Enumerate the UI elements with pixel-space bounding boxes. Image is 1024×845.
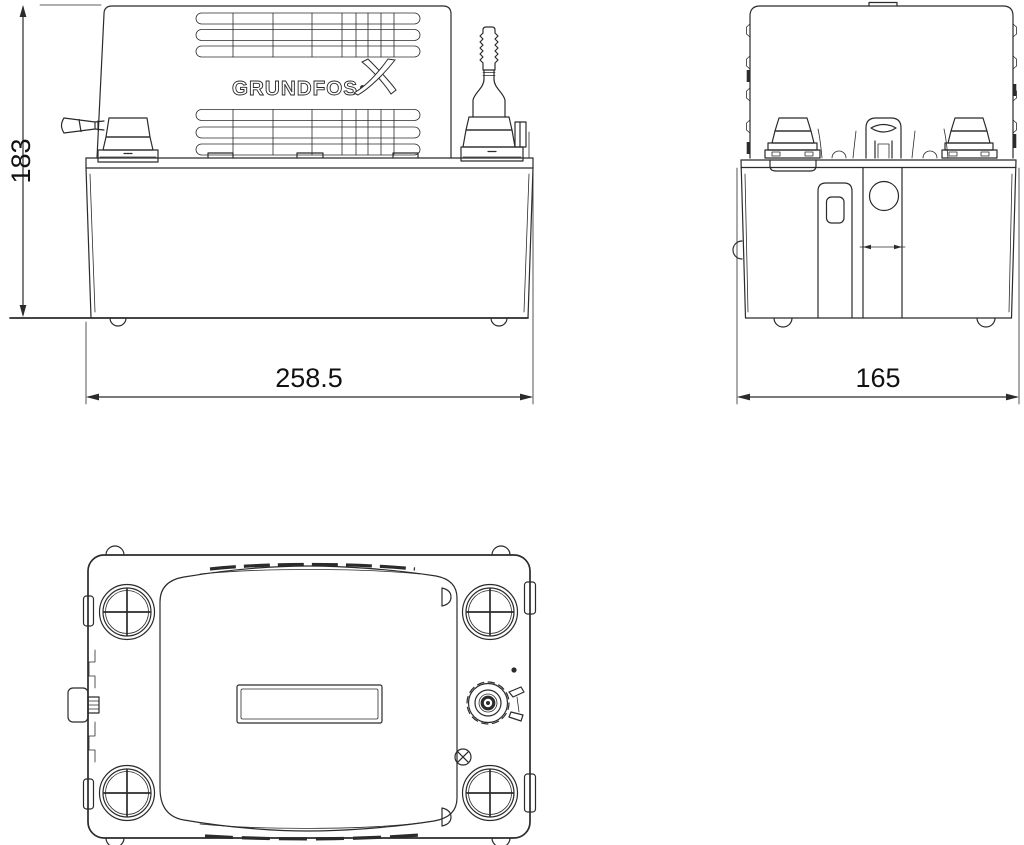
gland-clamp [509,712,523,721]
vent-valve [62,118,105,133]
arrowhead-right [520,394,533,401]
dim-width: 258.5 [86,170,533,404]
grundfos-logo-text: GRUNDFOS [232,78,358,100]
pilot-dot [511,667,516,672]
groove-window [827,197,845,223]
mounting-foot-top-left [100,585,155,640]
arrowhead-right [1006,394,1019,401]
foot-bump [106,546,124,555]
overflow-hole [870,182,899,211]
lid-clip-tab [297,153,323,158]
side-bump [733,241,742,259]
dim-depth: 165 [737,168,1019,404]
foot-bump [106,838,124,845]
side-view: 165 [733,3,1019,405]
mounting-foot-bottom-left [100,766,155,821]
grundfos-logo: GRUNDFOS [232,59,396,100]
tank-foot [491,318,507,326]
bottom-view [68,546,536,845]
arrowhead-down [20,305,27,317]
label-recess [237,685,382,723]
vent-grille-lower [196,110,420,156]
hose-barb [480,27,498,70]
side-grommet-right [942,118,997,158]
under-cap-tab [770,160,816,171]
side-lid [747,3,1017,159]
d-hole [442,588,451,606]
arrowhead-up [20,5,27,17]
tank-foot [110,318,126,326]
technical-drawing-page: GRUNDFOS [0,0,1024,845]
mounting-clip [68,650,99,762]
mounting-foot-top-right [463,585,518,640]
arrowhead-left [737,394,750,401]
grundfos-x-mark-icon [354,59,396,95]
bottom-panel [160,566,457,831]
gland-clamp [509,687,524,697]
dimensional-drawing: GRUNDFOS [0,0,1024,845]
vent-grille-upper [196,13,420,57]
dim-height: 183 [6,5,101,317]
front-tank [10,153,533,326]
arrowhead-left [86,394,99,401]
foot-bump [492,838,510,845]
lid-clip-tab [393,153,418,158]
dim-width-label: 258.5 [275,363,343,393]
carrying-handle [866,118,901,158]
side-groove [818,183,852,318]
front-view: GRUNDFOS [6,5,533,404]
tank-foot [774,318,792,327]
tank-foot [977,318,995,327]
mounting-foot-bottom-right [463,766,518,821]
lid-clip-tab [208,153,233,158]
cable-gland [467,682,524,724]
foot-bump [492,546,510,555]
side-grommet-left [765,118,820,158]
dim-depth-label: 165 [855,363,900,393]
side-tank [733,160,1016,327]
cable-details [818,129,948,158]
inlet-grommet-front [98,118,158,162]
dim-height-label: 183 [6,138,36,183]
discharge-connector [461,27,529,161]
